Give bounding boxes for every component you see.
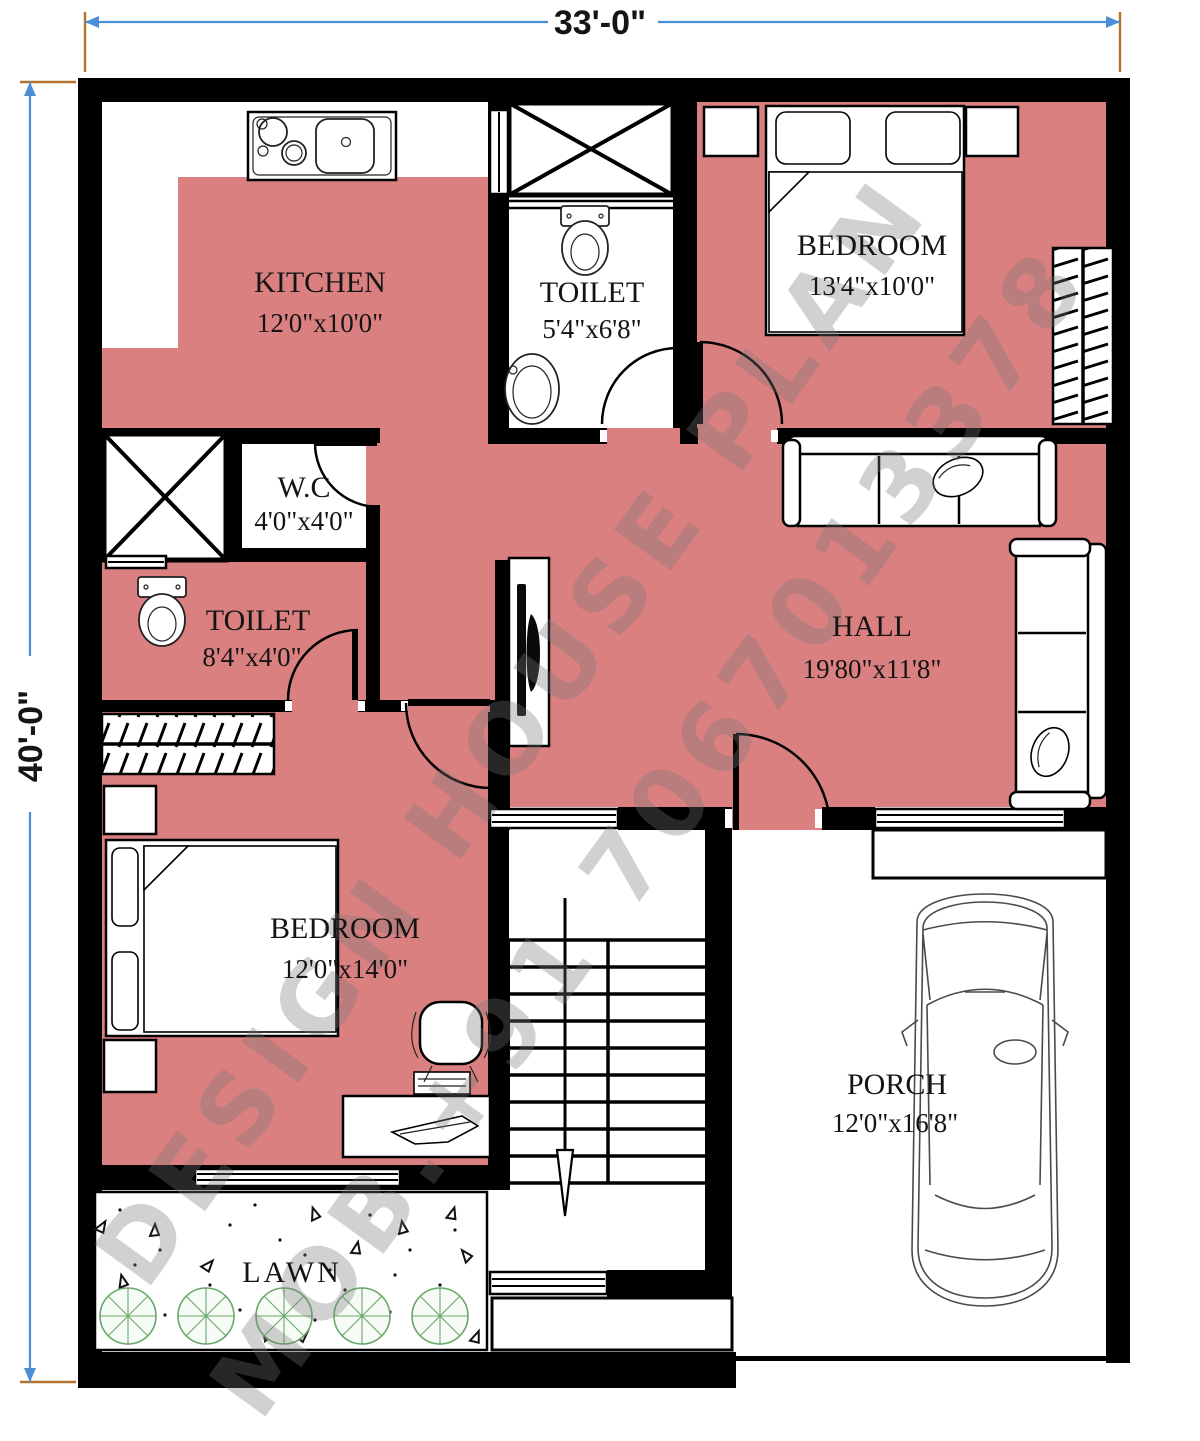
pillow-icon — [776, 112, 850, 164]
arrow-icon — [24, 82, 36, 96]
nightstand-icon — [104, 786, 156, 834]
svg-text:TOILET: TOILET — [206, 604, 310, 637]
svg-text:BEDROOM: BEDROOM — [797, 229, 947, 262]
wall-segment — [607, 1270, 732, 1298]
dimension-height-label: 40'-0" — [12, 690, 50, 782]
svg-text:LAWN: LAWN — [242, 1256, 342, 1289]
wall-segment — [705, 828, 732, 1280]
svg-text:19'80"x11'8": 19'80"x11'8" — [803, 654, 942, 684]
svg-text:PORCH: PORCH — [847, 1068, 947, 1101]
floor-plan-canvas: 33'-0" 40'-0" DESIGN HOUSE PLAN MOB.+91 … — [0, 0, 1200, 1441]
arrow-icon — [24, 1368, 36, 1382]
window-symbol — [490, 1272, 607, 1294]
wc-label: W.C 4'0"x4'0" — [254, 471, 353, 536]
svg-text:13'4"x10'0": 13'4"x10'0" — [809, 271, 935, 301]
arrow-icon — [1106, 16, 1120, 28]
entry-step-platform — [492, 1298, 732, 1350]
door-jamb — [815, 809, 822, 828]
wall-segment — [488, 428, 607, 444]
nightstand-icon — [704, 107, 758, 156]
svg-text:4'0"x4'0": 4'0"x4'0" — [254, 506, 353, 536]
dimension-top: 33'-0" — [85, 4, 1120, 72]
svg-text:HALL: HALL — [832, 610, 912, 643]
kitchen-floor — [102, 177, 488, 428]
pillow-icon — [112, 952, 138, 1030]
svg-text:12'0"x16'8": 12'0"x16'8" — [832, 1108, 958, 1138]
nightstand-icon — [104, 1040, 156, 1092]
opening — [380, 428, 488, 444]
dimension-left: 40'-0" — [12, 82, 76, 1382]
stove-burner-icon — [259, 118, 287, 146]
svg-text:W.C: W.C — [277, 471, 330, 504]
svg-text:BEDROOM: BEDROOM — [270, 912, 420, 945]
svg-text:12'0"x14'0": 12'0"x14'0" — [282, 954, 408, 984]
window-symbol — [490, 110, 508, 194]
toilet-left-fixtures — [138, 577, 186, 646]
opening — [732, 807, 822, 830]
floor-plan: 33'-0" 40'-0" DESIGN HOUSE PLAN MOB.+91 … — [0, 0, 1200, 1441]
wall-segment — [366, 562, 380, 712]
wall-segment — [1065, 807, 1106, 830]
tree-icon — [100, 1288, 156, 1344]
wall-segment — [78, 1352, 736, 1388]
window-symbol — [875, 809, 1065, 828]
svg-text:KITCHEN: KITCHEN — [254, 266, 386, 299]
door-jamb — [358, 701, 365, 711]
door-swing — [602, 348, 680, 424]
svg-text:12'0"x10'0": 12'0"x10'0" — [257, 308, 383, 338]
opening — [292, 700, 358, 712]
wall-segment — [78, 78, 1130, 102]
svg-text:TOILET: TOILET — [540, 276, 644, 309]
dimension-width-label: 33'-0" — [554, 4, 646, 42]
wall-segment — [732, 1356, 1130, 1361]
opening — [366, 443, 380, 505]
svg-text:8'4"x4'0": 8'4"x4'0" — [202, 642, 301, 672]
vent-symbol — [106, 556, 166, 568]
toilet-top-label: TOILET 5'4"x6'8" — [540, 276, 644, 344]
kitchen-counter — [248, 112, 396, 180]
lawn-label: LAWN — [242, 1256, 342, 1289]
pillow-icon — [886, 112, 960, 164]
porch-label: PORCH 12'0"x16'8" — [832, 1068, 958, 1138]
porch-step-platform — [873, 830, 1106, 878]
arrow-icon — [85, 16, 99, 28]
sofa-icon — [1010, 539, 1106, 809]
nightstand-icon — [966, 107, 1018, 156]
svg-text:5'4"x6'8": 5'4"x6'8" — [542, 314, 641, 344]
tree-icon — [412, 1288, 468, 1344]
pillow-icon — [112, 848, 138, 926]
door-jamb — [285, 701, 292, 711]
door-jamb — [600, 430, 607, 442]
